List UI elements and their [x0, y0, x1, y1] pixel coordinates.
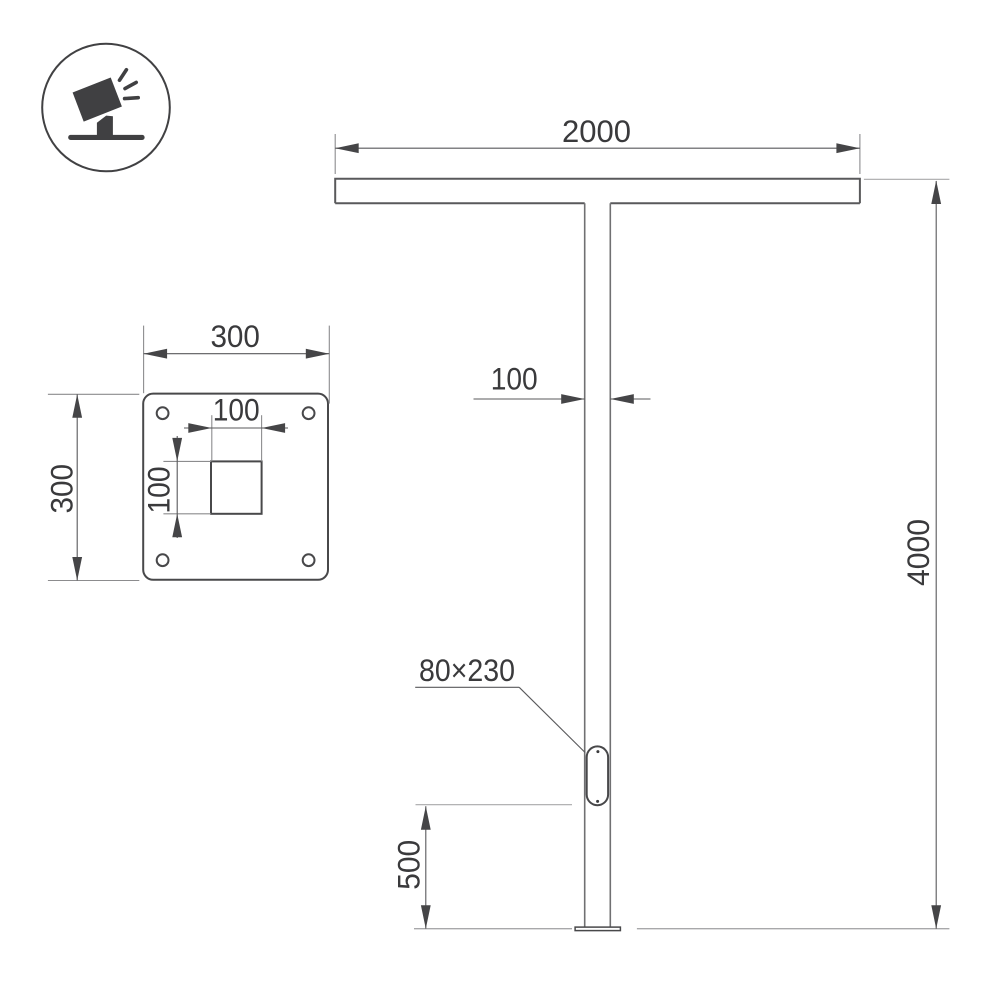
svg-text:80×230: 80×230	[419, 652, 515, 688]
svg-text:4000: 4000	[900, 519, 936, 586]
svg-text:300: 300	[44, 464, 80, 514]
svg-text:500: 500	[391, 840, 427, 890]
svg-text:100: 100	[141, 467, 177, 514]
svg-text:100: 100	[213, 392, 260, 428]
svg-text:100: 100	[491, 361, 538, 397]
svg-text:300: 300	[210, 318, 260, 354]
svg-text:2000: 2000	[562, 113, 631, 149]
